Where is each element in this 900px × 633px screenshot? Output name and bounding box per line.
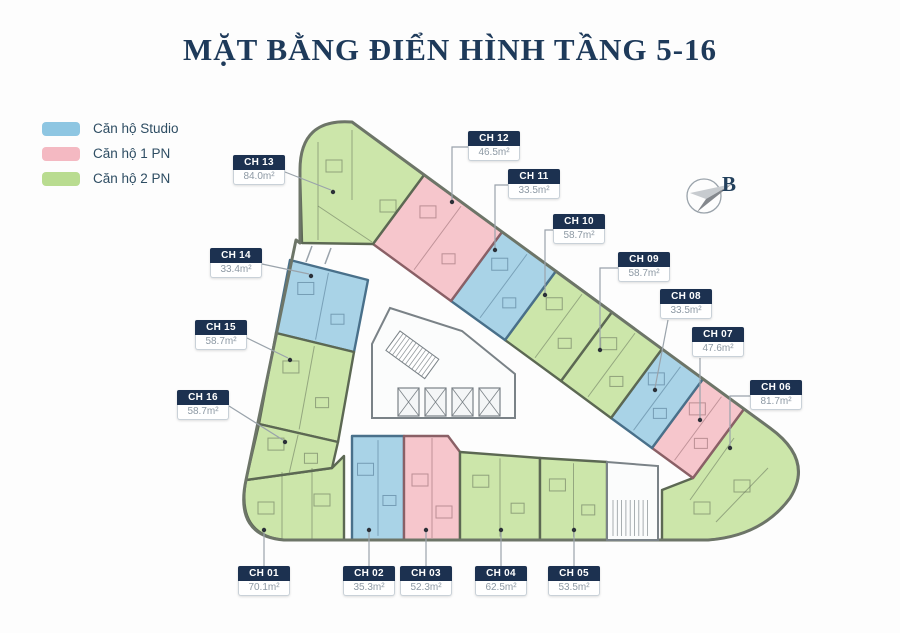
elevator-4 <box>479 388 500 416</box>
leader-ch-12 <box>452 147 468 200</box>
compass: B <box>687 172 736 213</box>
unit-area: 84.0m² <box>233 170 285 185</box>
unit-area: 70.1m² <box>238 581 290 596</box>
unit-area: 58.7m² <box>553 229 605 244</box>
unit-area: 58.7m² <box>195 335 247 350</box>
anchor-dot-ch-06 <box>728 446 732 450</box>
unit-id: CH 03 <box>400 566 452 581</box>
unit-area: 58.7m² <box>618 267 670 282</box>
passage-bridge <box>306 246 331 264</box>
unit-area: 33.5m² <box>660 304 712 319</box>
anchor-dot-ch-12 <box>450 200 454 204</box>
anchor-dot-ch-05 <box>572 528 576 532</box>
unit-id: CH 07 <box>692 327 744 342</box>
unit-id: CH 15 <box>195 320 247 335</box>
unit-id: CH 09 <box>618 252 670 267</box>
unit-id: CH 10 <box>553 214 605 229</box>
elevator-2 <box>425 388 446 416</box>
floor-plan: B <box>0 0 900 633</box>
unit-id: CH 05 <box>548 566 600 581</box>
anchor-dot-ch-09 <box>598 348 602 352</box>
anchor-dot-ch-14 <box>309 274 313 278</box>
unit-label-ch-06[interactable]: CH 0681.7m² <box>750 380 802 410</box>
unit-label-ch-05[interactable]: CH 0553.5m² <box>548 566 600 596</box>
unit-id: CH 12 <box>468 131 520 146</box>
unit-area: 33.5m² <box>508 184 560 199</box>
unit-id: CH 02 <box>343 566 395 581</box>
unit-area: 58.7m² <box>177 405 229 420</box>
unit-label-ch-07[interactable]: CH 0747.6m² <box>692 327 744 357</box>
unit-area: 52.3m² <box>400 581 452 596</box>
unit-area: 81.7m² <box>750 395 802 410</box>
anchor-dot-ch-01 <box>262 528 266 532</box>
unit-id: CH 13 <box>233 155 285 170</box>
unit-id: CH 16 <box>177 390 229 405</box>
anchor-dot-ch-16 <box>283 440 287 444</box>
unit-id: CH 11 <box>508 169 560 184</box>
elevator-1 <box>398 388 419 416</box>
unit-label-ch-01[interactable]: CH 0170.1m² <box>238 566 290 596</box>
anchor-dot-ch-10 <box>543 293 547 297</box>
unit-id: CH 01 <box>238 566 290 581</box>
unit-area: 53.5m² <box>548 581 600 596</box>
anchor-dot-ch-13 <box>331 190 335 194</box>
anchor-dot-ch-15 <box>288 358 292 362</box>
unit-id: CH 08 <box>660 289 712 304</box>
unit-area: 35.3m² <box>343 581 395 596</box>
unit-area: 33.4m² <box>210 263 262 278</box>
unit-label-ch-13[interactable]: CH 1384.0m² <box>233 155 285 185</box>
unit-id: CH 14 <box>210 248 262 263</box>
anchor-dot-ch-04 <box>499 528 503 532</box>
unit-area: 62.5m² <box>475 581 527 596</box>
unit-label-ch-11[interactable]: CH 1133.5m² <box>508 169 560 199</box>
anchor-dot-ch-02 <box>367 528 371 532</box>
unit-label-ch-15[interactable]: CH 1558.7m² <box>195 320 247 350</box>
unit-area: 46.5m² <box>468 146 520 161</box>
unit-label-ch-08[interactable]: CH 0833.5m² <box>660 289 712 319</box>
anchor-dot-ch-07 <box>698 418 702 422</box>
anchor-dot-ch-08 <box>653 388 657 392</box>
elevator-3 <box>452 388 473 416</box>
stairwell <box>607 462 658 540</box>
unit-label-ch-12[interactable]: CH 1246.5m² <box>468 131 520 161</box>
unit-label-ch-10[interactable]: CH 1058.7m² <box>553 214 605 244</box>
unit-area: 47.6m² <box>692 342 744 357</box>
unit-label-ch-02[interactable]: CH 0235.3m² <box>343 566 395 596</box>
unit-label-ch-14[interactable]: CH 1433.4m² <box>210 248 262 278</box>
compass-label: B <box>722 172 736 196</box>
anchor-dot-ch-11 <box>493 248 497 252</box>
unit-label-ch-04[interactable]: CH 0462.5m² <box>475 566 527 596</box>
unit-label-ch-09[interactable]: CH 0958.7m² <box>618 252 670 282</box>
unit-id: CH 06 <box>750 380 802 395</box>
anchor-dot-ch-03 <box>424 528 428 532</box>
unit-id: CH 04 <box>475 566 527 581</box>
unit-label-ch-16[interactable]: CH 1658.7m² <box>177 390 229 420</box>
unit-label-ch-03[interactable]: CH 0352.3m² <box>400 566 452 596</box>
